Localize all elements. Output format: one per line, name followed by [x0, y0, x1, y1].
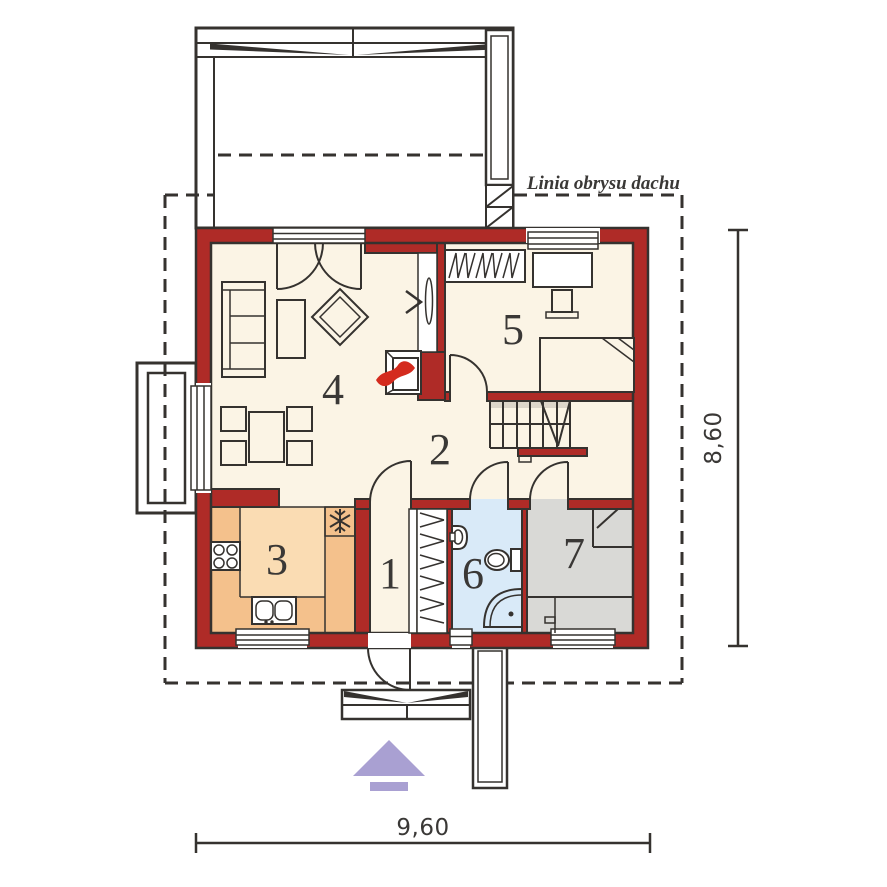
window-utility: [551, 629, 615, 648]
window-bathroom: [450, 629, 472, 648]
entrance-canopy: [342, 690, 470, 719]
room-number-7: 7: [563, 529, 585, 578]
vestibule-closet: [409, 509, 447, 633]
window-kitchen: [236, 629, 309, 648]
washbasin: [450, 526, 467, 549]
window-living: [191, 383, 211, 493]
chimney-top: [486, 30, 513, 228]
wardrobe: [445, 250, 525, 282]
floor-plan-drawing: 1 2 3 4 5 6 7 Linia obrysu dachu 9,60 8,…: [0, 0, 887, 887]
room-number-6: 6: [462, 549, 484, 598]
floor-plan-page: 1 2 3 4 5 6 7 Linia obrysu dachu 9,60 8,…: [0, 0, 887, 887]
room-number-1: 1: [379, 549, 401, 598]
dimension-bottom: 9,60: [196, 815, 650, 853]
chimney-bottom: [473, 645, 507, 788]
bed: [540, 338, 634, 392]
entrance-arrow-icon: [353, 740, 425, 791]
room-number-3: 3: [266, 535, 288, 584]
dimension-height-label: 8,60: [701, 411, 727, 464]
roof-outline-label: Linia obrysu dachu: [526, 173, 680, 194]
room-number-2: 2: [429, 425, 451, 474]
entrance-door: [368, 633, 411, 690]
stove-icon: [211, 542, 240, 570]
desk: [533, 253, 592, 287]
window-bedroom: [526, 228, 600, 249]
dimension-right: 8,60: [701, 230, 748, 646]
room-number-5: 5: [502, 305, 524, 354]
dimension-width-label: 9,60: [396, 815, 449, 841]
vent-lens-icon: [426, 278, 433, 324]
kitchen-sink: [252, 597, 296, 624]
terrace-top: [196, 28, 513, 228]
toilet: [485, 549, 521, 571]
room-number-4: 4: [322, 365, 344, 414]
